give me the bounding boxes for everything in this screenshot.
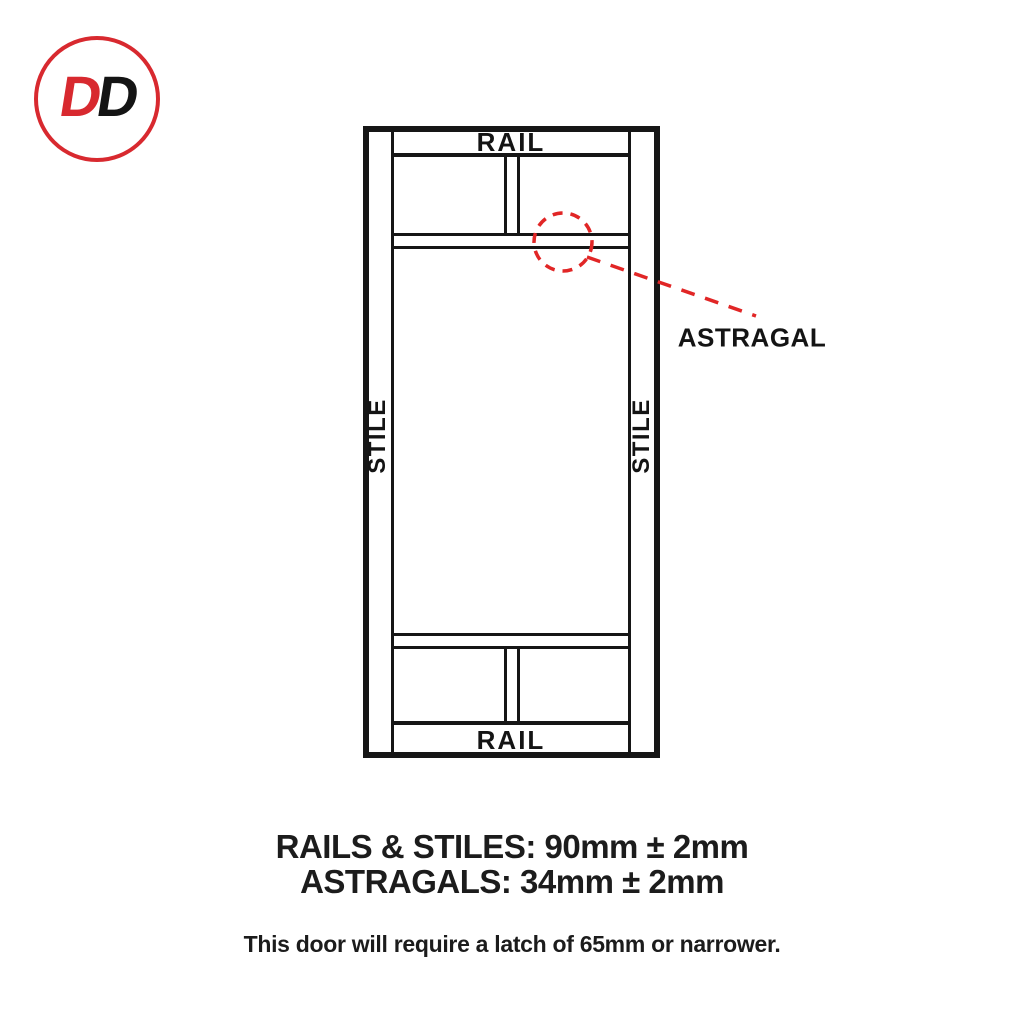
astragal-callout-circle <box>534 213 592 271</box>
astragal-label: ASTRAGAL <box>678 323 826 354</box>
rails-stiles-spec-text: RAILS & STILES: 90mm ± 2mm <box>0 829 1024 864</box>
astragal-callout-leader-line <box>587 257 756 316</box>
spec-captions: RAILS & STILES: 90mm ± 2mm ASTRAGALS: 34… <box>0 829 1024 957</box>
astragals-spec-text: ASTRAGALS: 34mm ± 2mm <box>0 864 1024 899</box>
latch-note-text: This door will require a latch of 65mm o… <box>0 932 1024 957</box>
